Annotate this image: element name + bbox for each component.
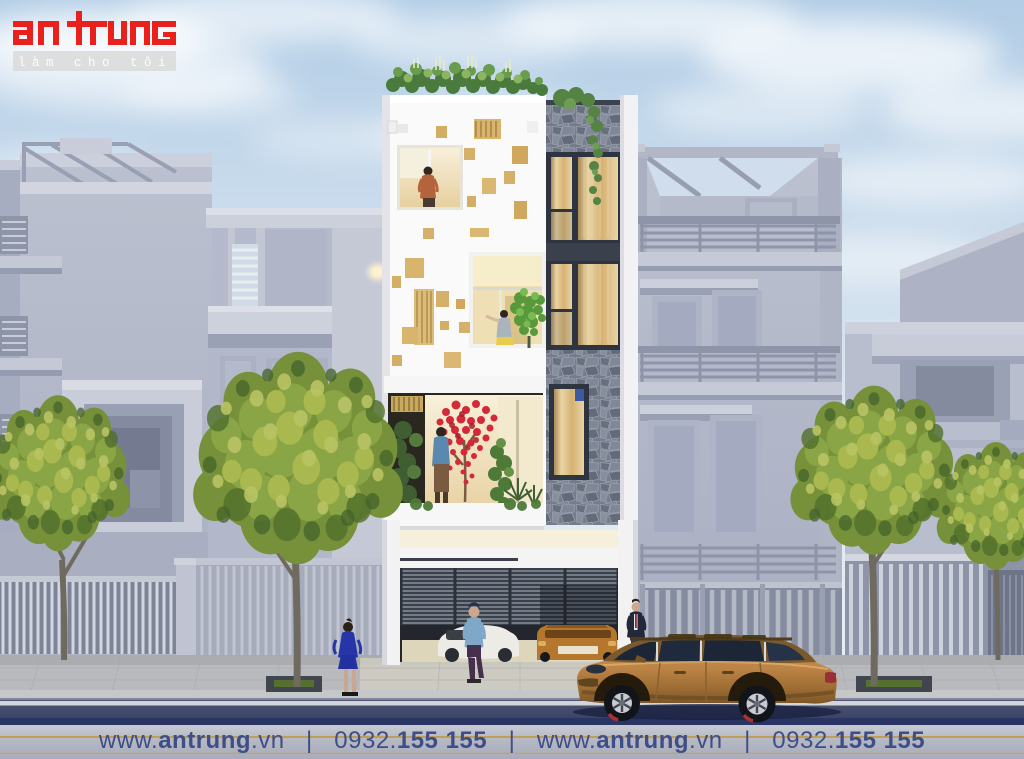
svg-text:www.antrung.vn | 0932.155: www.antrung.vn | 0932.155 155 | www.antr… — [98, 727, 925, 754]
svg-text:làm cho tôi: làm cho tôi — [18, 56, 172, 70]
